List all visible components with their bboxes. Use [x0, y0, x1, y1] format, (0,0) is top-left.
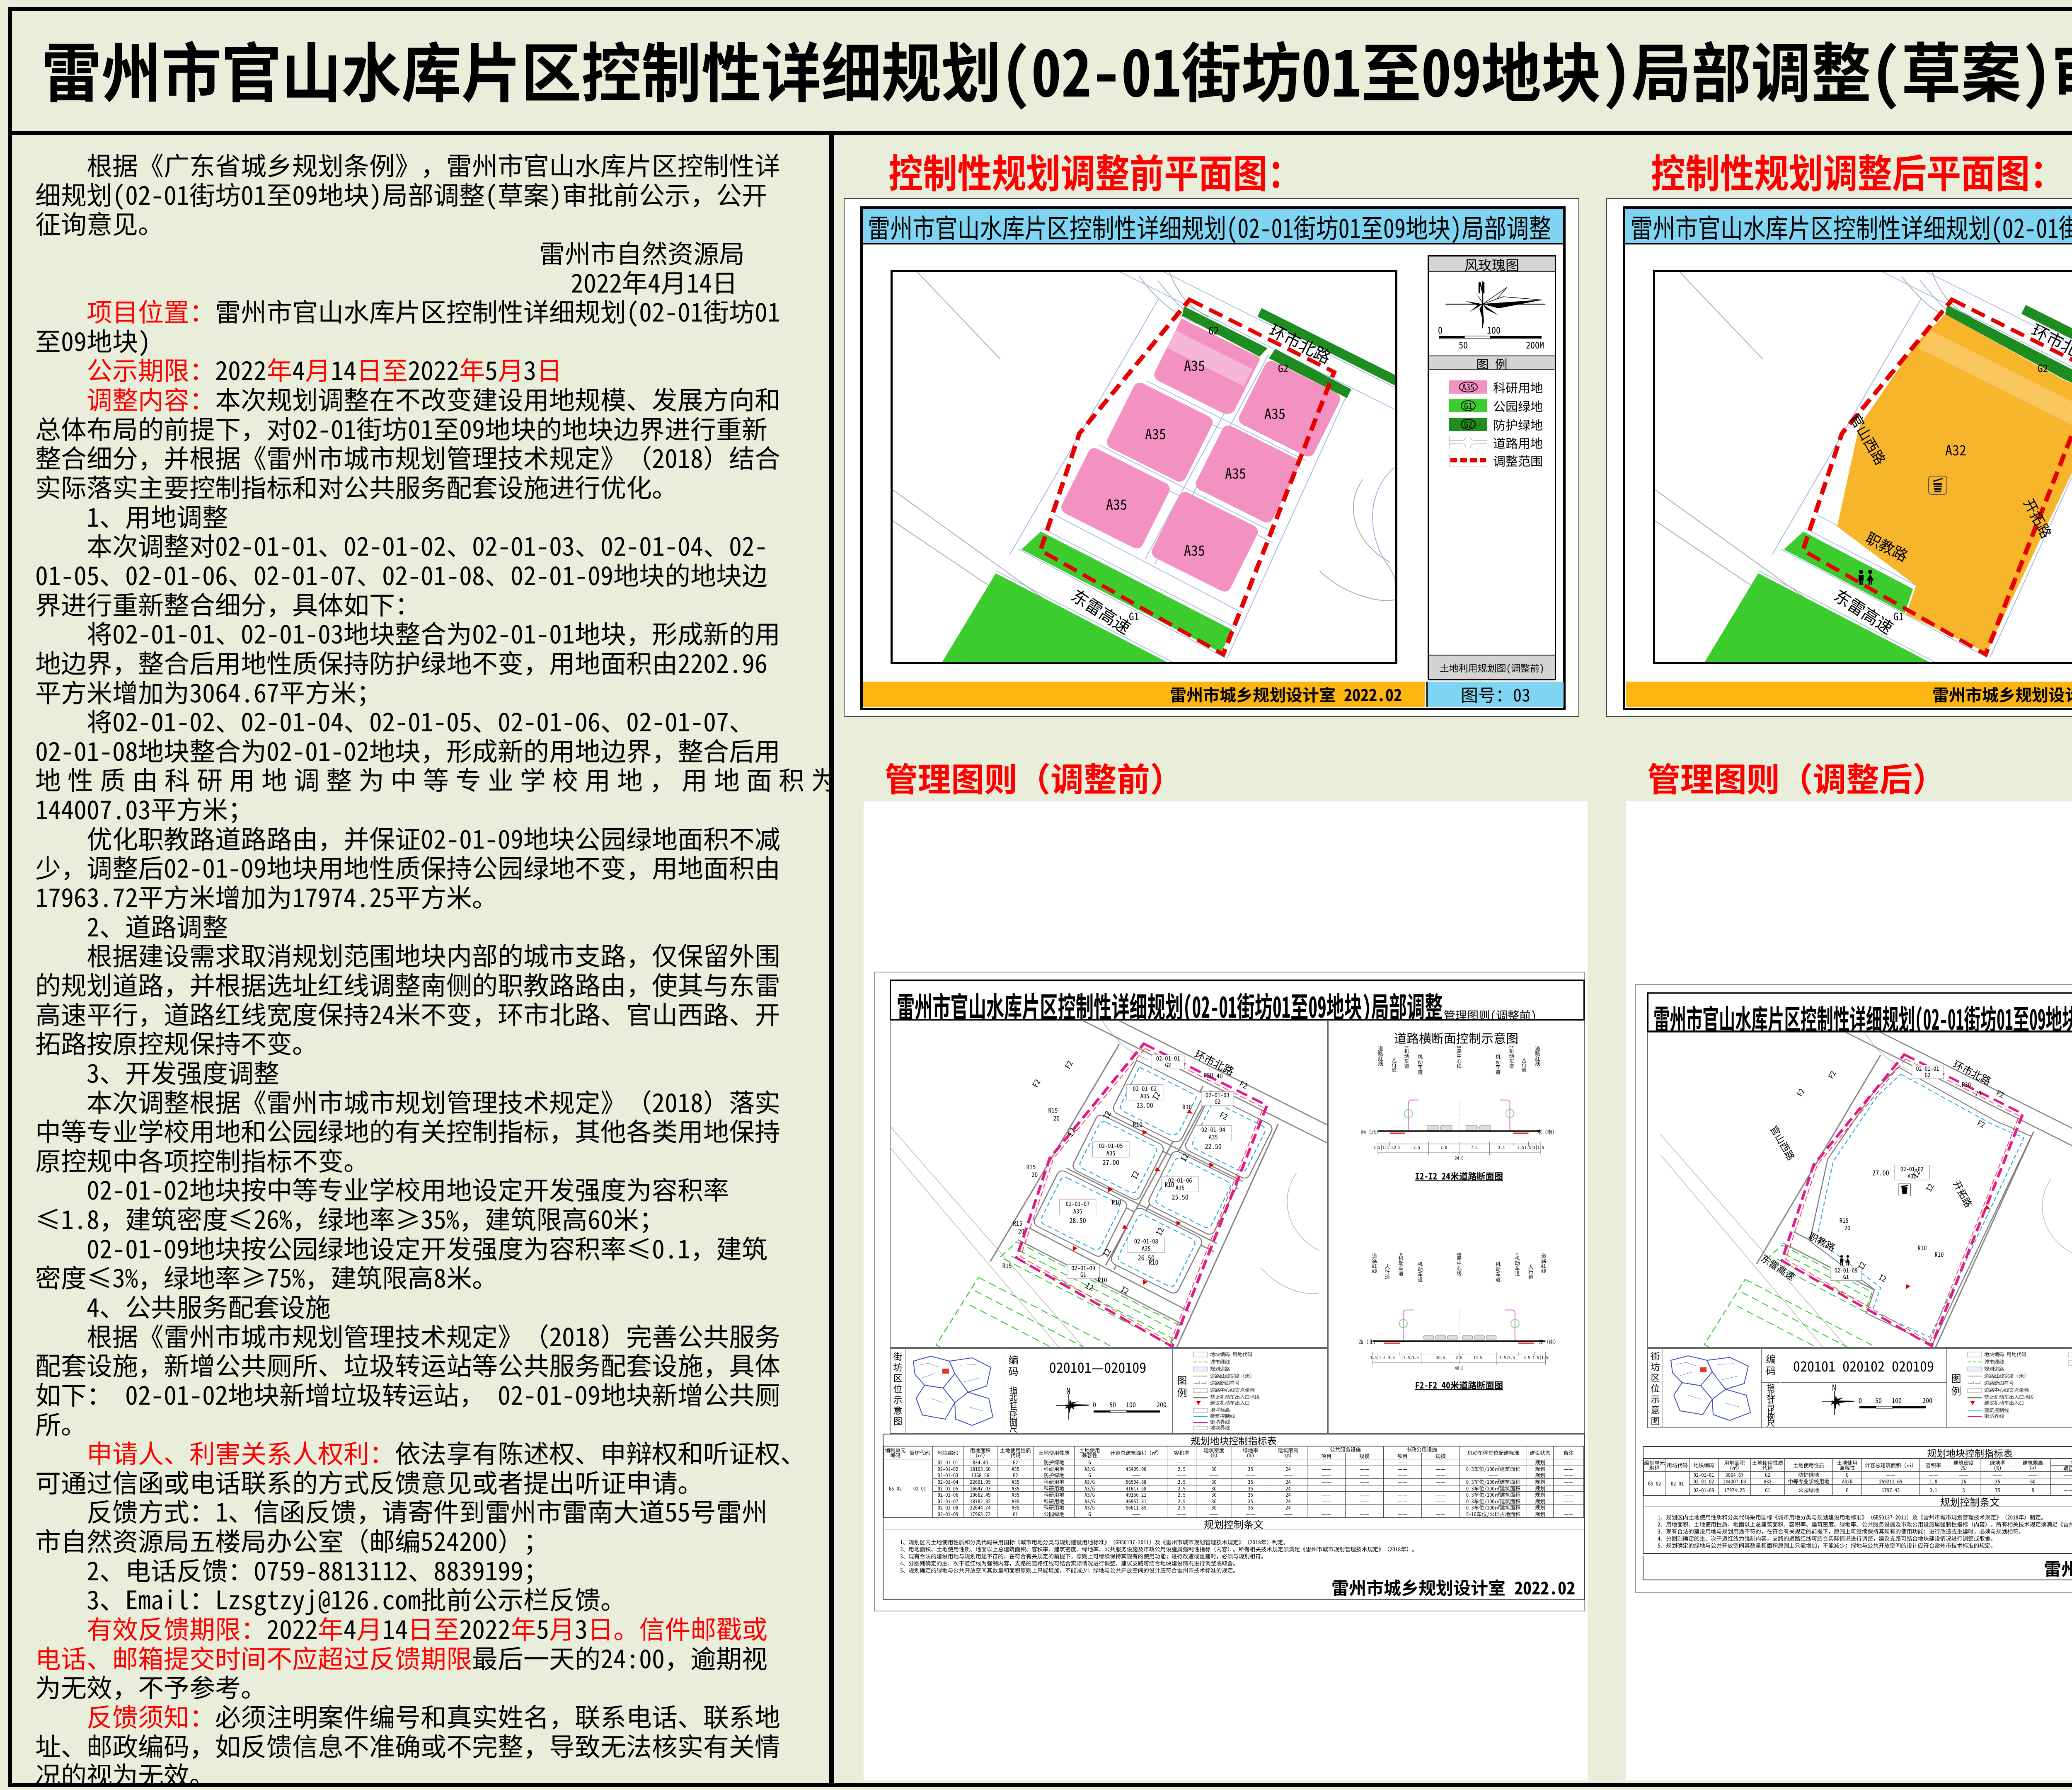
- svg-text:50: 50: [1459, 338, 1468, 351]
- svg-text:规划道路: 规划道路: [1984, 1365, 2004, 1372]
- svg-text:10.5: 10.5: [1436, 1355, 1445, 1361]
- svg-text:F2: F2: [1825, 1069, 1838, 1081]
- svg-text:G1: G1: [1080, 1270, 1086, 1279]
- svg-text:200M: 200M: [1526, 338, 1544, 351]
- svg-text:R10: R10: [1917, 1243, 1927, 1252]
- svg-text:20: 20: [1975, 1089, 1981, 1098]
- svg-text:环市北路: 环市北路: [1192, 1046, 1237, 1079]
- svg-text:2.5: 2.5: [1394, 1144, 1401, 1151]
- svg-text:非机动车道: 非机动车道: [1513, 1253, 1521, 1276]
- svg-text:A35: A35: [1264, 403, 1285, 423]
- svg-text:城市绿线: 城市绿线: [1210, 1358, 1230, 1365]
- svg-text:非机动车道: 非机动车道: [1403, 1046, 1410, 1069]
- svg-text:F2: F2: [1062, 1059, 1075, 1071]
- svg-text:机动车道: 机动车道: [1416, 1054, 1424, 1074]
- svg-text:R10: R10: [1934, 1250, 1944, 1259]
- svg-text:20: 20: [1018, 1226, 1024, 1236]
- svg-text:10.5: 10.5: [1473, 1355, 1482, 1361]
- svg-text:G1: G1: [1843, 1273, 1849, 1281]
- svg-text:2.0: 2.0: [1456, 1355, 1462, 1361]
- svg-text:2.5: 2.5: [1414, 1144, 1420, 1151]
- svg-text:道路中心线: 道路中心线: [1455, 1046, 1463, 1069]
- svg-text:A35: A35: [1145, 423, 1166, 443]
- svg-text:1.5|1.5: 1.5|1.5: [1370, 1355, 1385, 1361]
- svg-text:200: 200: [1922, 1395, 1932, 1405]
- svg-text:0: 0: [1438, 327, 1443, 336]
- svg-text:G2: G2: [1215, 1097, 1220, 1106]
- svg-text:24.0: 24.0: [1455, 1155, 1463, 1161]
- svg-text:建议机动车出入口: 建议机动车出入口: [1210, 1399, 1250, 1406]
- svg-text:R10: R10: [1149, 1258, 1158, 1267]
- svg-text:机动车道: 机动车道: [1494, 1054, 1502, 1074]
- svg-text:2.5: 2.5: [1518, 1144, 1524, 1151]
- svg-text:A35: A35: [1184, 539, 1205, 560]
- svg-text:25.50: 25.50: [1172, 1192, 1188, 1202]
- svg-text:道路红线: 道路红线: [1377, 1046, 1385, 1066]
- svg-text:城市绿线: 城市绿线: [1984, 1358, 2004, 1365]
- svg-text:道路断面符号: 道路断面符号: [1210, 1379, 1240, 1386]
- svg-text:N: N: [1066, 1386, 1070, 1396]
- svg-text:道路红线宽度（米）: 道路红线宽度（米）: [1210, 1372, 1255, 1379]
- svg-text:7.0: 7.0: [1471, 1144, 1478, 1151]
- svg-text:A35: A35: [1184, 355, 1205, 375]
- svg-text:A35: A35: [1106, 493, 1127, 514]
- svg-text:R10: R10: [1133, 1120, 1143, 1129]
- svg-text:F2: F2: [1995, 1087, 2006, 1100]
- svg-text:27.00: 27.00: [1102, 1157, 1119, 1167]
- svg-text:7.0: 7.0: [1440, 1144, 1447, 1151]
- svg-text:R30: R30: [1962, 1080, 1971, 1089]
- svg-text:2.5: 2.5: [1498, 1144, 1505, 1151]
- svg-text:人行道: 人行道: [1527, 1264, 1535, 1280]
- svg-text:地块编码 用地代码: 地块编码 用地代码: [1210, 1351, 1252, 1358]
- svg-text:N: N: [1832, 1383, 1836, 1393]
- svg-text:道路中心线交点坐标: 道路中心线交点坐标: [1984, 1386, 2029, 1393]
- svg-text:人行道: 人行道: [1390, 1057, 1398, 1072]
- svg-text:1.5|1.5: 1.5|1.5: [1532, 1355, 1548, 1361]
- svg-text:G2: G2: [1208, 323, 1219, 338]
- svg-text:道路中心线: 道路中心线: [1455, 1253, 1463, 1276]
- svg-text:3.5: 3.5: [1523, 1355, 1530, 1361]
- svg-text:A35: A35: [1209, 1132, 1218, 1141]
- svg-text:街坊界线: 街坊界线: [1984, 1413, 2004, 1420]
- svg-text:规划道路: 规划道路: [1210, 1365, 1230, 1372]
- svg-text:地块编码 用地代码: 地块编码 用地代码: [1984, 1351, 2026, 1358]
- svg-text:建议机动车出入口: 建议机动车出入口: [1984, 1399, 2024, 1406]
- svg-text:3.5|1.5: 3.5|1.5: [1403, 1355, 1418, 1361]
- svg-text:道路中心线交点坐标: 道路中心线交点坐标: [1210, 1386, 1255, 1393]
- svg-text:人行道: 人行道: [1384, 1264, 1391, 1280]
- svg-text:1.5|3.5: 1.5|3.5: [1499, 1355, 1515, 1361]
- svg-text:27.00: 27.00: [1872, 1167, 1889, 1177]
- svg-text:20: 20: [1053, 1113, 1060, 1122]
- svg-text:非机动车道: 非机动车道: [1508, 1046, 1515, 1069]
- svg-text:F2: F2: [1794, 1086, 1807, 1098]
- svg-text:R10: R10: [1165, 1180, 1174, 1189]
- svg-text:A35: A35: [1142, 1244, 1151, 1253]
- svg-text:机动车道: 机动车道: [1416, 1262, 1424, 1282]
- svg-text:道路红线: 道路红线: [1534, 1046, 1541, 1066]
- svg-text:23.00: 23.00: [1136, 1100, 1153, 1110]
- svg-text:地块界线: 地块界线: [1210, 1424, 1230, 1431]
- svg-text:R10: R10: [1098, 1275, 1107, 1284]
- svg-text:A32: A32: [1945, 439, 1966, 460]
- svg-text:A35: A35: [1073, 1207, 1082, 1215]
- svg-text:R10: R10: [1112, 1197, 1121, 1207]
- svg-text:50: 50: [1109, 1399, 1116, 1409]
- svg-text:F2: F2: [1238, 1078, 1250, 1091]
- svg-text:50: 50: [1875, 1395, 1882, 1405]
- svg-text:A35: A35: [1106, 1149, 1116, 1158]
- svg-text:F2-F2 40米道路断面图: F2-F2 40米道路断面图: [1415, 1379, 1503, 1391]
- svg-text:F2: F2: [1029, 1077, 1043, 1089]
- svg-text:官山西路: 官山西路: [1767, 1122, 1798, 1163]
- svg-text:人行道: 人行道: [1520, 1057, 1528, 1072]
- svg-text:I2-I2 24米道路断面图: I2-I2 24米道路断面图: [1415, 1170, 1503, 1183]
- svg-text:100: 100: [1892, 1395, 1902, 1405]
- svg-text:道路红线: 道路红线: [1371, 1253, 1378, 1273]
- svg-text:20: 20: [1031, 1170, 1038, 1179]
- svg-text:22.50: 22.50: [1205, 1141, 1222, 1151]
- svg-text:20: 20: [1844, 1224, 1851, 1232]
- svg-text:A35: A35: [1225, 462, 1246, 483]
- svg-text:R10: R10: [1182, 1102, 1192, 1111]
- svg-text:I2: I2: [1119, 1283, 1131, 1297]
- svg-text:100: 100: [1487, 327, 1501, 336]
- svg-text:100: 100: [1126, 1399, 1136, 1409]
- svg-text:3.5: 3.5: [1388, 1355, 1395, 1361]
- svg-text:G2: G2: [1278, 360, 1288, 375]
- svg-text:40.0: 40.0: [1455, 1365, 1463, 1371]
- svg-text:1.5|1|1.5: 1.5|1|1.5: [1524, 1144, 1544, 1151]
- svg-text:道路红线: 道路红线: [1540, 1253, 1547, 1273]
- svg-text:200: 200: [1157, 1399, 1167, 1409]
- svg-text:0: 0: [1859, 1395, 1862, 1405]
- svg-text:28.50: 28.50: [1069, 1215, 1086, 1225]
- svg-text:G2: G2: [2038, 360, 2048, 375]
- svg-text:G2: G2: [1165, 1061, 1171, 1069]
- svg-text:R20: R20: [1203, 1070, 1213, 1079]
- svg-text:道路断面符号: 道路断面符号: [1984, 1379, 2014, 1386]
- svg-text:0: 0: [1093, 1399, 1096, 1409]
- svg-text:G2: G2: [1925, 1071, 1931, 1079]
- svg-text:40: 40: [1216, 1071, 1222, 1080]
- svg-text:R15: R15: [1002, 1261, 1012, 1270]
- svg-text:A35: A35: [1140, 1092, 1150, 1101]
- svg-text:非机动车道: 非机动车道: [1397, 1253, 1405, 1276]
- svg-text:机动车道: 机动车道: [1494, 1262, 1502, 1282]
- svg-text:1.5|1|1.5: 1.5|1|1.5: [1374, 1144, 1394, 1151]
- svg-text:环市北路: 环市北路: [1951, 1057, 1994, 1088]
- svg-text:道路红线宽度（米）: 道路红线宽度（米）: [1984, 1372, 2029, 1379]
- svg-text:A35: A35: [1176, 1183, 1185, 1192]
